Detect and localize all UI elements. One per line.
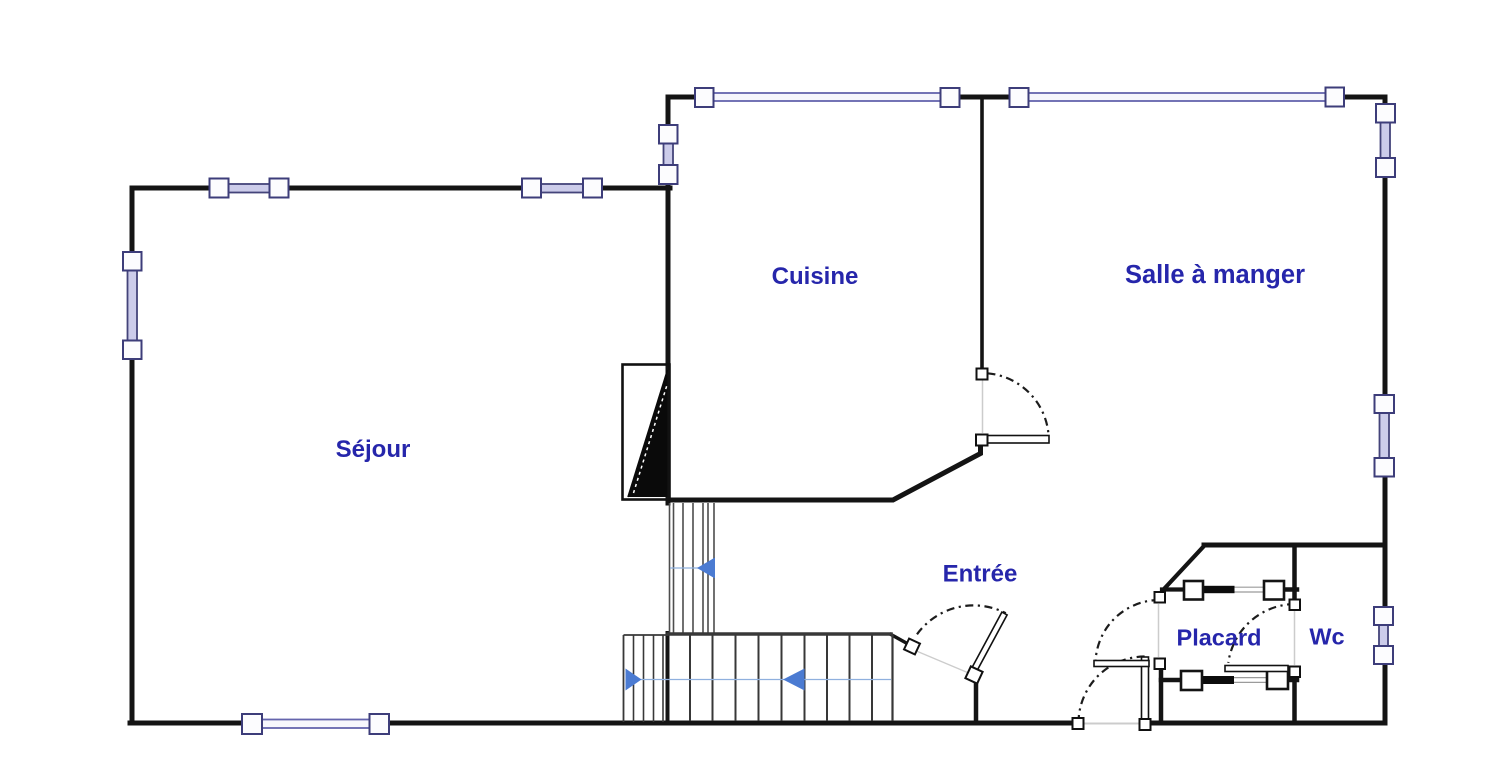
svg-text:Séjour: Séjour <box>336 436 411 463</box>
svg-text:Wc: Wc <box>1309 624 1344 650</box>
svg-text:Cuisine: Cuisine <box>772 263 859 290</box>
svg-text:Entrée: Entrée <box>943 561 1018 588</box>
svg-text:Placard: Placard <box>1177 625 1262 651</box>
svg-text:Salle à manger: Salle à manger <box>1125 261 1305 289</box>
